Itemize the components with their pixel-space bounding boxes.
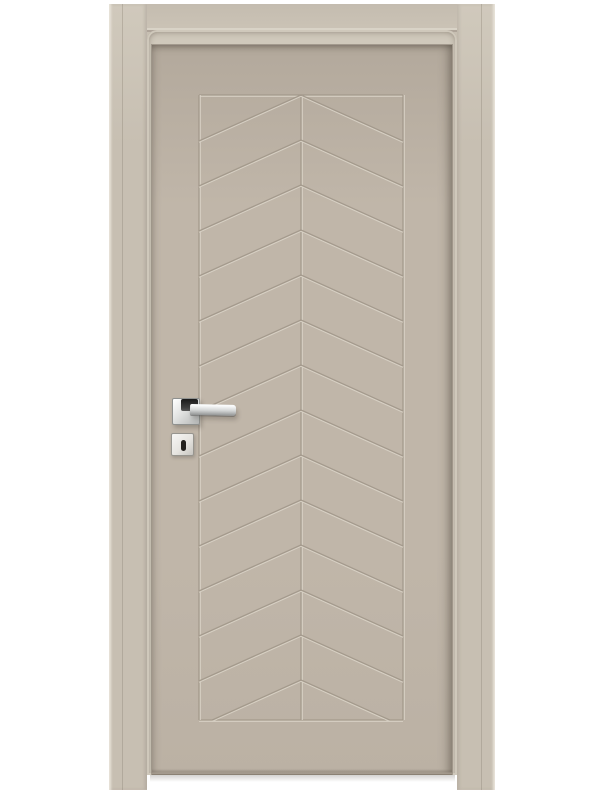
frame-right-stile	[457, 4, 495, 790]
frame-seam-line	[122, 4, 123, 790]
frame-header	[147, 4, 457, 30]
frame-seam-line	[481, 4, 482, 790]
door-shadow	[150, 775, 455, 782]
keyhole-icon	[181, 440, 186, 451]
keyhole-escutcheon	[171, 433, 194, 456]
handle-lever	[190, 404, 236, 416]
frame-left-stile	[109, 4, 147, 790]
door-product-photo	[0, 0, 600, 800]
